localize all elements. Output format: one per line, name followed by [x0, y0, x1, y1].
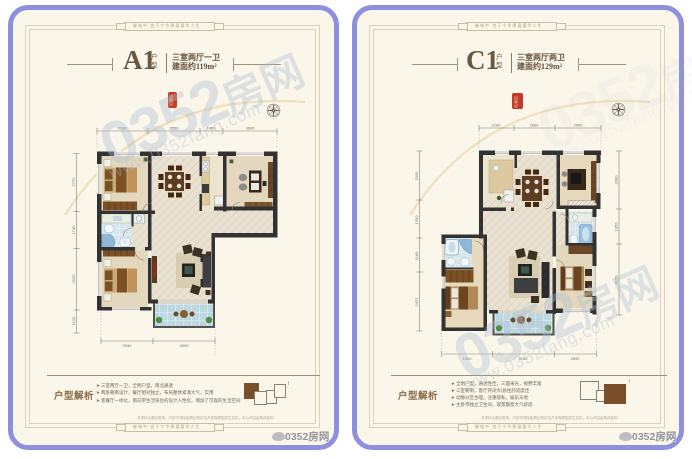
svg-text:3340: 3340 — [123, 343, 133, 348]
svg-text:3300: 3300 — [614, 175, 619, 185]
svg-text:2422: 2422 — [414, 297, 419, 307]
svg-text:1180: 1180 — [414, 251, 419, 260]
svg-text:1100: 1100 — [71, 316, 76, 325]
svg-text:2690: 2690 — [571, 356, 581, 361]
svg-text:2100: 2100 — [492, 123, 502, 128]
svg-text:1330: 1330 — [414, 215, 419, 225]
svg-text:2900: 2900 — [71, 274, 76, 284]
svg-text:2005: 2005 — [414, 171, 419, 181]
svg-text:1350: 1350 — [614, 222, 619, 232]
svg-text:4000: 4000 — [180, 343, 190, 348]
svg-text:3600: 3600 — [246, 126, 256, 131]
svg-text:2770: 2770 — [71, 177, 76, 187]
svg-text:1740: 1740 — [71, 225, 76, 235]
